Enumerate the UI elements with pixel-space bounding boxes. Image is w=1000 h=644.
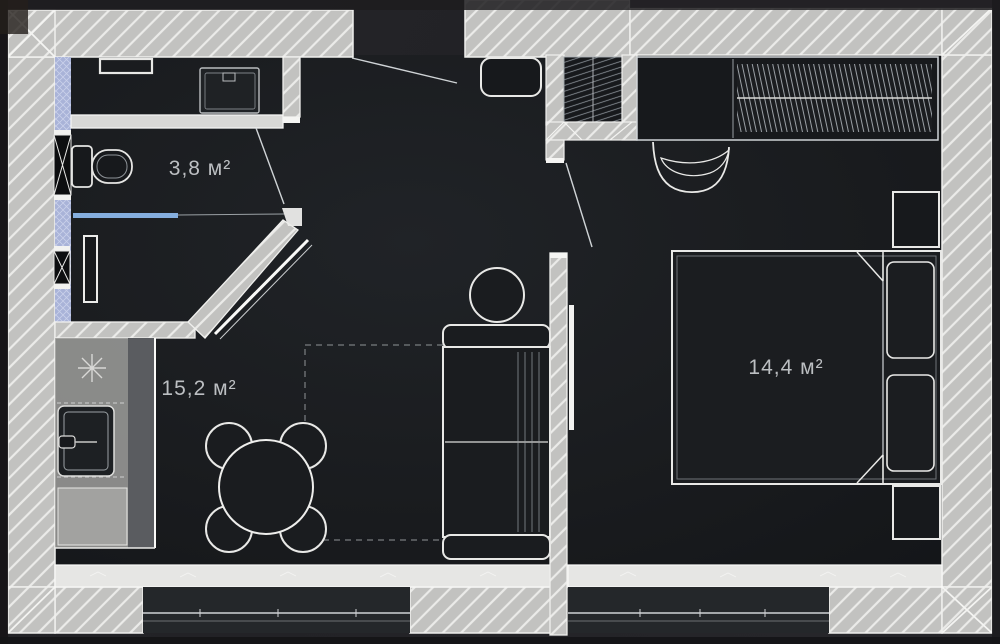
closet-left-wall: [546, 55, 564, 125]
window-bedroom: [568, 587, 829, 633]
wall-shelf: [100, 59, 152, 73]
vent-shaft-box-1: [54, 130, 71, 200]
wall-left: [8, 57, 55, 587]
floor-plan-photo: 3,8 м²: [0, 0, 1000, 644]
tv: [569, 305, 574, 430]
bathroom-bottom-wall: [55, 322, 195, 338]
pillow: [887, 375, 934, 471]
kitchen-sink: [58, 406, 114, 476]
dining-table: [219, 440, 313, 534]
door-stub-wall: [546, 140, 564, 160]
nightstand: [893, 192, 939, 247]
sill-bedroom: [568, 565, 942, 587]
shower-glass-partition: [73, 213, 178, 218]
room-label-bathroom: 3,8 м²: [169, 157, 231, 180]
faucet: [59, 436, 75, 448]
room-label-bedroom: 14,4 м²: [748, 356, 823, 379]
towel-radiator: [84, 236, 97, 302]
entry-closet: [564, 57, 622, 122]
vent-shaft-box-2: [54, 246, 70, 289]
pillow: [887, 262, 934, 358]
wall-bottom-3: [829, 587, 942, 633]
corner-top-right: [942, 8, 992, 55]
toilet: [72, 146, 132, 187]
side-table: [470, 268, 524, 322]
closet-bottom-strip: [546, 122, 637, 140]
kitchen: [55, 338, 155, 548]
wall-bottom-2: [410, 587, 552, 633]
wall-top-left: [8, 10, 353, 57]
bedroom: 14,4 м²: [637, 57, 941, 539]
room-label-living: 15,2 м²: [161, 377, 236, 400]
photo-corner-smudge: [0, 0, 28, 34]
corner-bottom-left: [8, 587, 55, 633]
door-jamb-cap: [283, 117, 300, 123]
wall-bottom-1: [55, 587, 143, 633]
window-living: [143, 587, 410, 633]
floor-plan: 3,8 м²: [0, 0, 1000, 644]
corner-bottom-right: [942, 587, 992, 633]
bathroom-right-wall: [283, 57, 300, 117]
window-sill-bands: [55, 565, 942, 587]
sofa: [443, 325, 550, 559]
washing-machine: [200, 68, 259, 113]
wall-top-right: [630, 8, 942, 55]
dining-set: [206, 423, 326, 552]
bathroom-divider-wall: [71, 115, 283, 128]
door-jamb-cap: [546, 158, 564, 163]
sill-living: [55, 565, 552, 587]
cooktop-symbol: [78, 354, 106, 382]
entry-pouf: [481, 58, 541, 96]
nightstand: [893, 486, 940, 539]
wall-right: [942, 55, 992, 587]
wardrobe: [637, 57, 938, 140]
